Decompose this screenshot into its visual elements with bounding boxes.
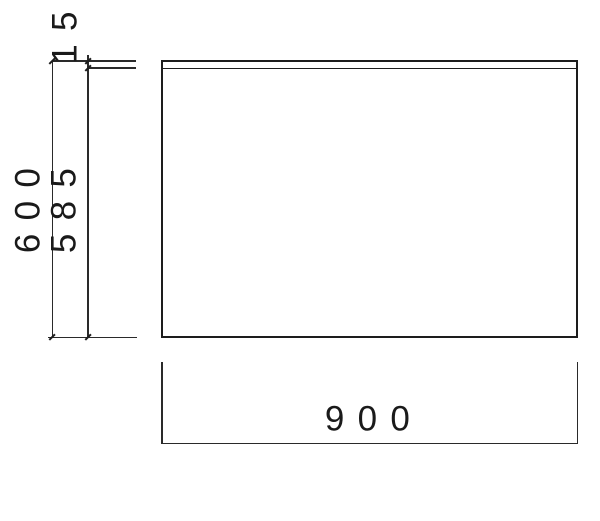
dim-width-extension-right (577, 362, 579, 444)
extension-line-rail-bottom (88, 67, 136, 69)
cad-dimension-drawing: 15 600 585 900 (0, 0, 600, 521)
dim-label-inner-height: 585 (47, 155, 82, 253)
panel-front-view-outline (161, 60, 578, 338)
dim-line-overall-width (161, 443, 578, 445)
dim-label-top-thickness: 15 (48, 0, 83, 64)
dim-line-inner-height (87, 55, 89, 338)
panel-top-rail-line (162, 68, 577, 70)
extension-line-panel-bottom (48, 337, 137, 339)
dim-label-overall-height: 600 (11, 155, 46, 253)
dim-width-extension-left (161, 362, 163, 444)
dim-label-overall-width: 900 (325, 402, 423, 437)
